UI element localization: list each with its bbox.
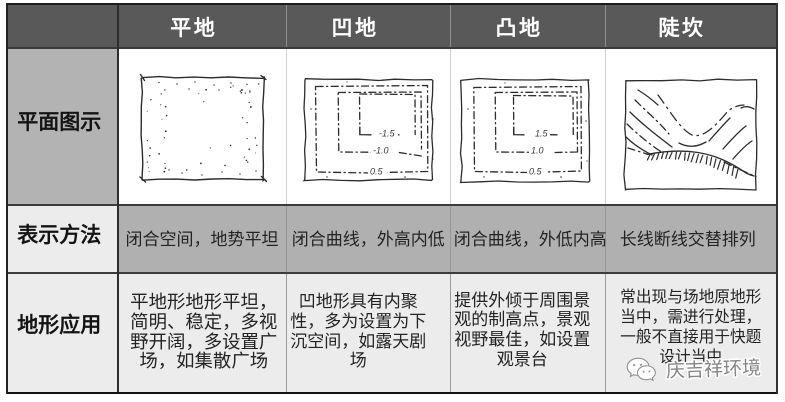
svg-text:1.0: 1.0 (531, 146, 544, 156)
svg-text:0.5: 0.5 (370, 167, 384, 177)
svg-text:1.5: 1.5 (535, 129, 549, 139)
svg-text:-1.0: -1.0 (373, 146, 389, 156)
svg-text:-1.5: -1.5 (379, 129, 396, 139)
svg-text:0.5: 0.5 (529, 167, 543, 177)
